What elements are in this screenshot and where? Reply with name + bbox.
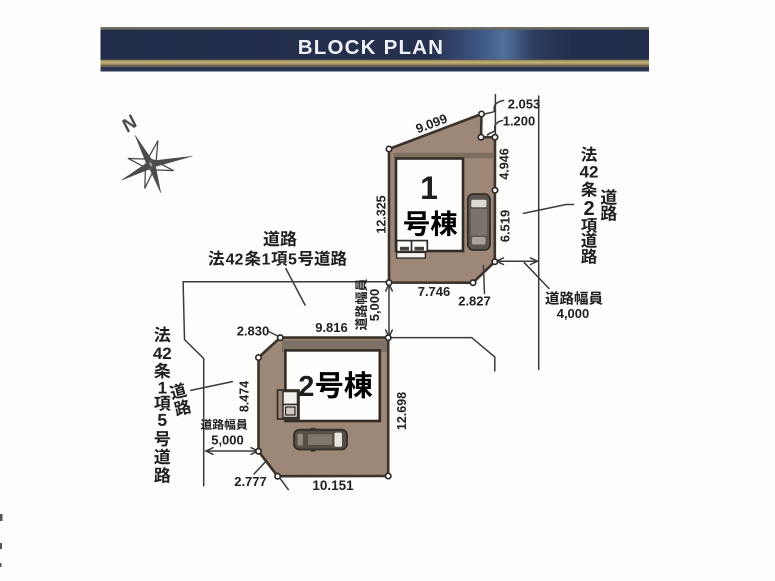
svg-text:1: 1: [158, 379, 167, 398]
svg-text:2: 2: [583, 198, 594, 220]
svg-text:2.827: 2.827: [458, 294, 491, 309]
svg-text:8.474: 8.474: [238, 381, 252, 412]
svg-text:BLOCK PLAN: BLOCK PLAN: [298, 36, 444, 59]
svg-text:6.519: 6.519: [498, 210, 513, 243]
svg-text:2.830: 2.830: [237, 324, 270, 339]
svg-text:42: 42: [580, 163, 599, 182]
svg-text:1.200: 1.200: [503, 114, 536, 129]
svg-text:5,000: 5,000: [367, 289, 382, 322]
svg-text:10.151: 10.151: [312, 478, 354, 493]
svg-text:2: 2: [298, 371, 314, 403]
svg-text:4.946: 4.946: [498, 148, 512, 179]
svg-text:42: 42: [153, 344, 172, 363]
svg-text:42: 42: [226, 252, 244, 269]
svg-text:9.816: 9.816: [315, 320, 348, 335]
svg-text:4,000: 4,000: [557, 306, 590, 321]
svg-text:12.698: 12.698: [395, 392, 409, 430]
svg-text:12.325: 12.325: [374, 195, 388, 233]
svg-text:5: 5: [288, 252, 297, 269]
svg-text:2.053: 2.053: [508, 97, 541, 112]
svg-text:2.777: 2.777: [234, 474, 267, 489]
svg-text:1: 1: [420, 170, 438, 206]
svg-text:5: 5: [157, 410, 167, 430]
svg-text:5,000: 5,000: [211, 433, 244, 448]
svg-text:7.746: 7.746: [418, 284, 451, 299]
svg-text:1: 1: [262, 252, 271, 269]
